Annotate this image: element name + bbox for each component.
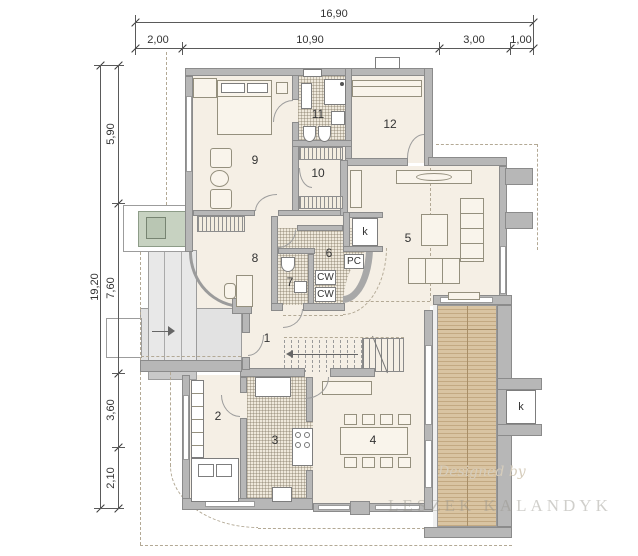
window-living-east bbox=[500, 246, 506, 294]
sideboard-dining bbox=[322, 381, 372, 395]
closet-room10-bottom bbox=[299, 196, 343, 209]
stairs-arrow-head bbox=[286, 350, 293, 358]
wardrobe-room12 bbox=[352, 80, 422, 97]
window-bath-top bbox=[303, 69, 322, 77]
pantry-shelves bbox=[191, 380, 204, 458]
fireplace-label: k bbox=[362, 226, 368, 238]
roof-dash-left bbox=[140, 252, 141, 545]
side-table-round bbox=[210, 170, 229, 187]
armchair-2 bbox=[210, 189, 232, 209]
room-label-5: 5 bbox=[400, 232, 416, 244]
stairs-top-dash bbox=[284, 337, 404, 338]
wall-east-room12 bbox=[424, 68, 433, 166]
coffee-table bbox=[421, 214, 448, 246]
room-label-10: 10 bbox=[309, 167, 327, 179]
dim-total-width: 16,90 bbox=[294, 8, 374, 20]
dim-ext bbox=[112, 203, 125, 204]
washer-top-label: CW bbox=[317, 272, 334, 283]
wall-wc-utility bbox=[308, 254, 314, 304]
bidet bbox=[318, 126, 331, 142]
wall-utility-south-right bbox=[303, 303, 345, 311]
porch-canopy-dash bbox=[141, 356, 241, 357]
room-label-6: 6 bbox=[321, 247, 337, 259]
wall-hall-kitchen-right bbox=[330, 368, 375, 377]
canopy-dash-h bbox=[258, 528, 430, 529]
dimline-top-2 bbox=[135, 48, 533, 49]
ramp-arrow-head bbox=[168, 326, 175, 336]
wall-porch-south bbox=[140, 360, 242, 372]
room-label-3: 3 bbox=[267, 434, 283, 446]
room-label-9: 9 bbox=[246, 154, 264, 166]
chair-t4 bbox=[398, 414, 411, 425]
chair-t1 bbox=[344, 414, 357, 425]
room-label-8: 8 bbox=[247, 252, 263, 264]
sink-basin-2 bbox=[216, 464, 232, 477]
room-label-2: 2 bbox=[210, 410, 226, 422]
stairs-upper-dashed bbox=[284, 338, 362, 372]
burner-1 bbox=[295, 432, 301, 438]
sink-basin-1 bbox=[198, 464, 214, 477]
roof-dash-right bbox=[537, 144, 538, 250]
wall-room12-south bbox=[345, 158, 408, 166]
washer-top: CW bbox=[315, 270, 336, 285]
chair-b2 bbox=[362, 457, 375, 468]
desk bbox=[236, 275, 253, 307]
toilet bbox=[303, 126, 316, 142]
washbasin bbox=[331, 111, 345, 125]
dim-ext bbox=[94, 508, 124, 509]
wall-vestibule-west bbox=[271, 216, 278, 311]
room-label-7: 7 bbox=[282, 276, 298, 288]
window-dining-east-2 bbox=[425, 440, 432, 488]
chair-t2 bbox=[362, 414, 375, 425]
dishwasher bbox=[272, 487, 292, 502]
dimline-top-1 bbox=[135, 22, 533, 23]
chair-b4 bbox=[398, 457, 411, 468]
wall-2-3-upper bbox=[240, 377, 247, 393]
terrace-center-line bbox=[467, 306, 468, 526]
shelf-living-south bbox=[448, 292, 480, 300]
wc-toilet bbox=[281, 257, 295, 272]
chimney-right-band-top bbox=[497, 378, 542, 390]
ramp-lane-line2 bbox=[181, 251, 182, 371]
bed-blanket-line bbox=[218, 96, 271, 97]
roof-dash-left-top bbox=[166, 52, 167, 205]
chimney-right-band-bottom bbox=[497, 424, 542, 436]
dim-ext bbox=[112, 447, 125, 448]
pc-label: PC bbox=[347, 256, 361, 267]
dim-ext bbox=[510, 42, 511, 55]
ramp-lane-line bbox=[164, 251, 165, 371]
window-kitchen-west bbox=[183, 395, 189, 460]
pc-box: PC bbox=[344, 254, 364, 269]
kitchen-counter-top bbox=[255, 377, 291, 397]
canopy-dash-v bbox=[170, 362, 171, 466]
wall-utility-south-left bbox=[271, 303, 283, 311]
dim-ext bbox=[112, 373, 125, 374]
dim-lseg-1: 5,90 bbox=[105, 112, 117, 156]
dim-seg-4: 1,00 bbox=[491, 34, 551, 46]
dimline-left-2 bbox=[118, 65, 119, 508]
wall-2-3-lower bbox=[240, 418, 247, 505]
window-dining-east-1 bbox=[425, 345, 432, 425]
fireplace-box: k bbox=[352, 218, 378, 246]
pillar-stub-1 bbox=[505, 168, 533, 185]
dimline-left-1 bbox=[100, 65, 101, 508]
dim-seg-1: 2,00 bbox=[128, 34, 188, 46]
dim-ext bbox=[94, 65, 124, 66]
pillar-dining-south bbox=[350, 501, 370, 515]
burner-3 bbox=[295, 442, 301, 448]
dim-lseg-3: 3,60 bbox=[105, 388, 117, 432]
chimney-stub-top bbox=[375, 57, 400, 69]
terrace-step-line bbox=[437, 329, 497, 330]
washer-bottom-label: CW bbox=[317, 289, 334, 300]
dim-ext bbox=[182, 42, 183, 55]
shower-head-dot bbox=[340, 82, 344, 86]
nightstand bbox=[276, 82, 288, 94]
driveway-ramp bbox=[148, 250, 197, 372]
wall-vestibule-top bbox=[297, 225, 343, 231]
pillar-stub-2 bbox=[505, 212, 533, 229]
chair-t3 bbox=[380, 414, 393, 425]
wall-9-10-upper bbox=[292, 75, 299, 100]
entry-step bbox=[106, 318, 142, 358]
pillow-2 bbox=[247, 83, 268, 93]
shelf-living-west bbox=[350, 170, 362, 208]
chair-b1 bbox=[344, 457, 357, 468]
room-label-12: 12 bbox=[381, 118, 399, 130]
burner-4 bbox=[304, 442, 310, 448]
wall-9-10-lower bbox=[292, 122, 299, 216]
fireplace-niche-bottom bbox=[343, 246, 383, 252]
sofa-horizontal bbox=[408, 258, 460, 284]
dim-seg-2: 10,90 bbox=[280, 34, 340, 46]
room-label-1: 1 bbox=[259, 332, 275, 344]
watermark-script: Designed by bbox=[438, 464, 526, 480]
roof-dash-right-top bbox=[436, 144, 537, 145]
stairs-lower bbox=[362, 338, 404, 372]
dim-lseg-2: 7,60 bbox=[105, 266, 117, 310]
wall-9-8-right bbox=[278, 210, 345, 216]
wardrobe-room12-line bbox=[353, 86, 421, 87]
planter-inner bbox=[146, 217, 166, 239]
roof-dash-bottom bbox=[140, 545, 512, 546]
chair-b3 bbox=[380, 457, 393, 468]
bathroom-cabinet bbox=[301, 83, 312, 109]
sofa-vertical bbox=[460, 198, 484, 262]
window-dining-south-1 bbox=[318, 505, 350, 510]
dim-ext bbox=[439, 42, 440, 55]
wall-living-north bbox=[428, 157, 507, 166]
chimney-right-box: k bbox=[506, 390, 536, 424]
pillow-1 bbox=[221, 83, 245, 93]
terrace-wall-bottom bbox=[424, 527, 512, 538]
dim-lseg-4: 2,10 bbox=[105, 456, 117, 500]
closet-room8 bbox=[197, 216, 245, 232]
armchair-1 bbox=[210, 148, 232, 168]
chimney-right-label: k bbox=[518, 401, 524, 413]
floor-plan: k PC CW CW k 9 11 12 10 8 7 6 5 1 2 3 4 … bbox=[0, 0, 638, 556]
room-label-11: 11 bbox=[309, 108, 327, 120]
room-label-4: 4 bbox=[365, 434, 381, 446]
washer-bottom: CW bbox=[315, 287, 336, 302]
closet-room10-top bbox=[299, 147, 343, 160]
tv-set bbox=[416, 173, 452, 181]
burner-2 bbox=[304, 432, 310, 438]
desk-chair bbox=[224, 283, 236, 299]
watermark-name: LESZEK KALANDYK bbox=[388, 496, 612, 516]
window-west-bedroom bbox=[186, 96, 192, 172]
stairs-arrow-line bbox=[292, 354, 358, 355]
wardrobe-bedroom9 bbox=[193, 78, 217, 98]
wall-hall-west-lower bbox=[242, 357, 250, 370]
